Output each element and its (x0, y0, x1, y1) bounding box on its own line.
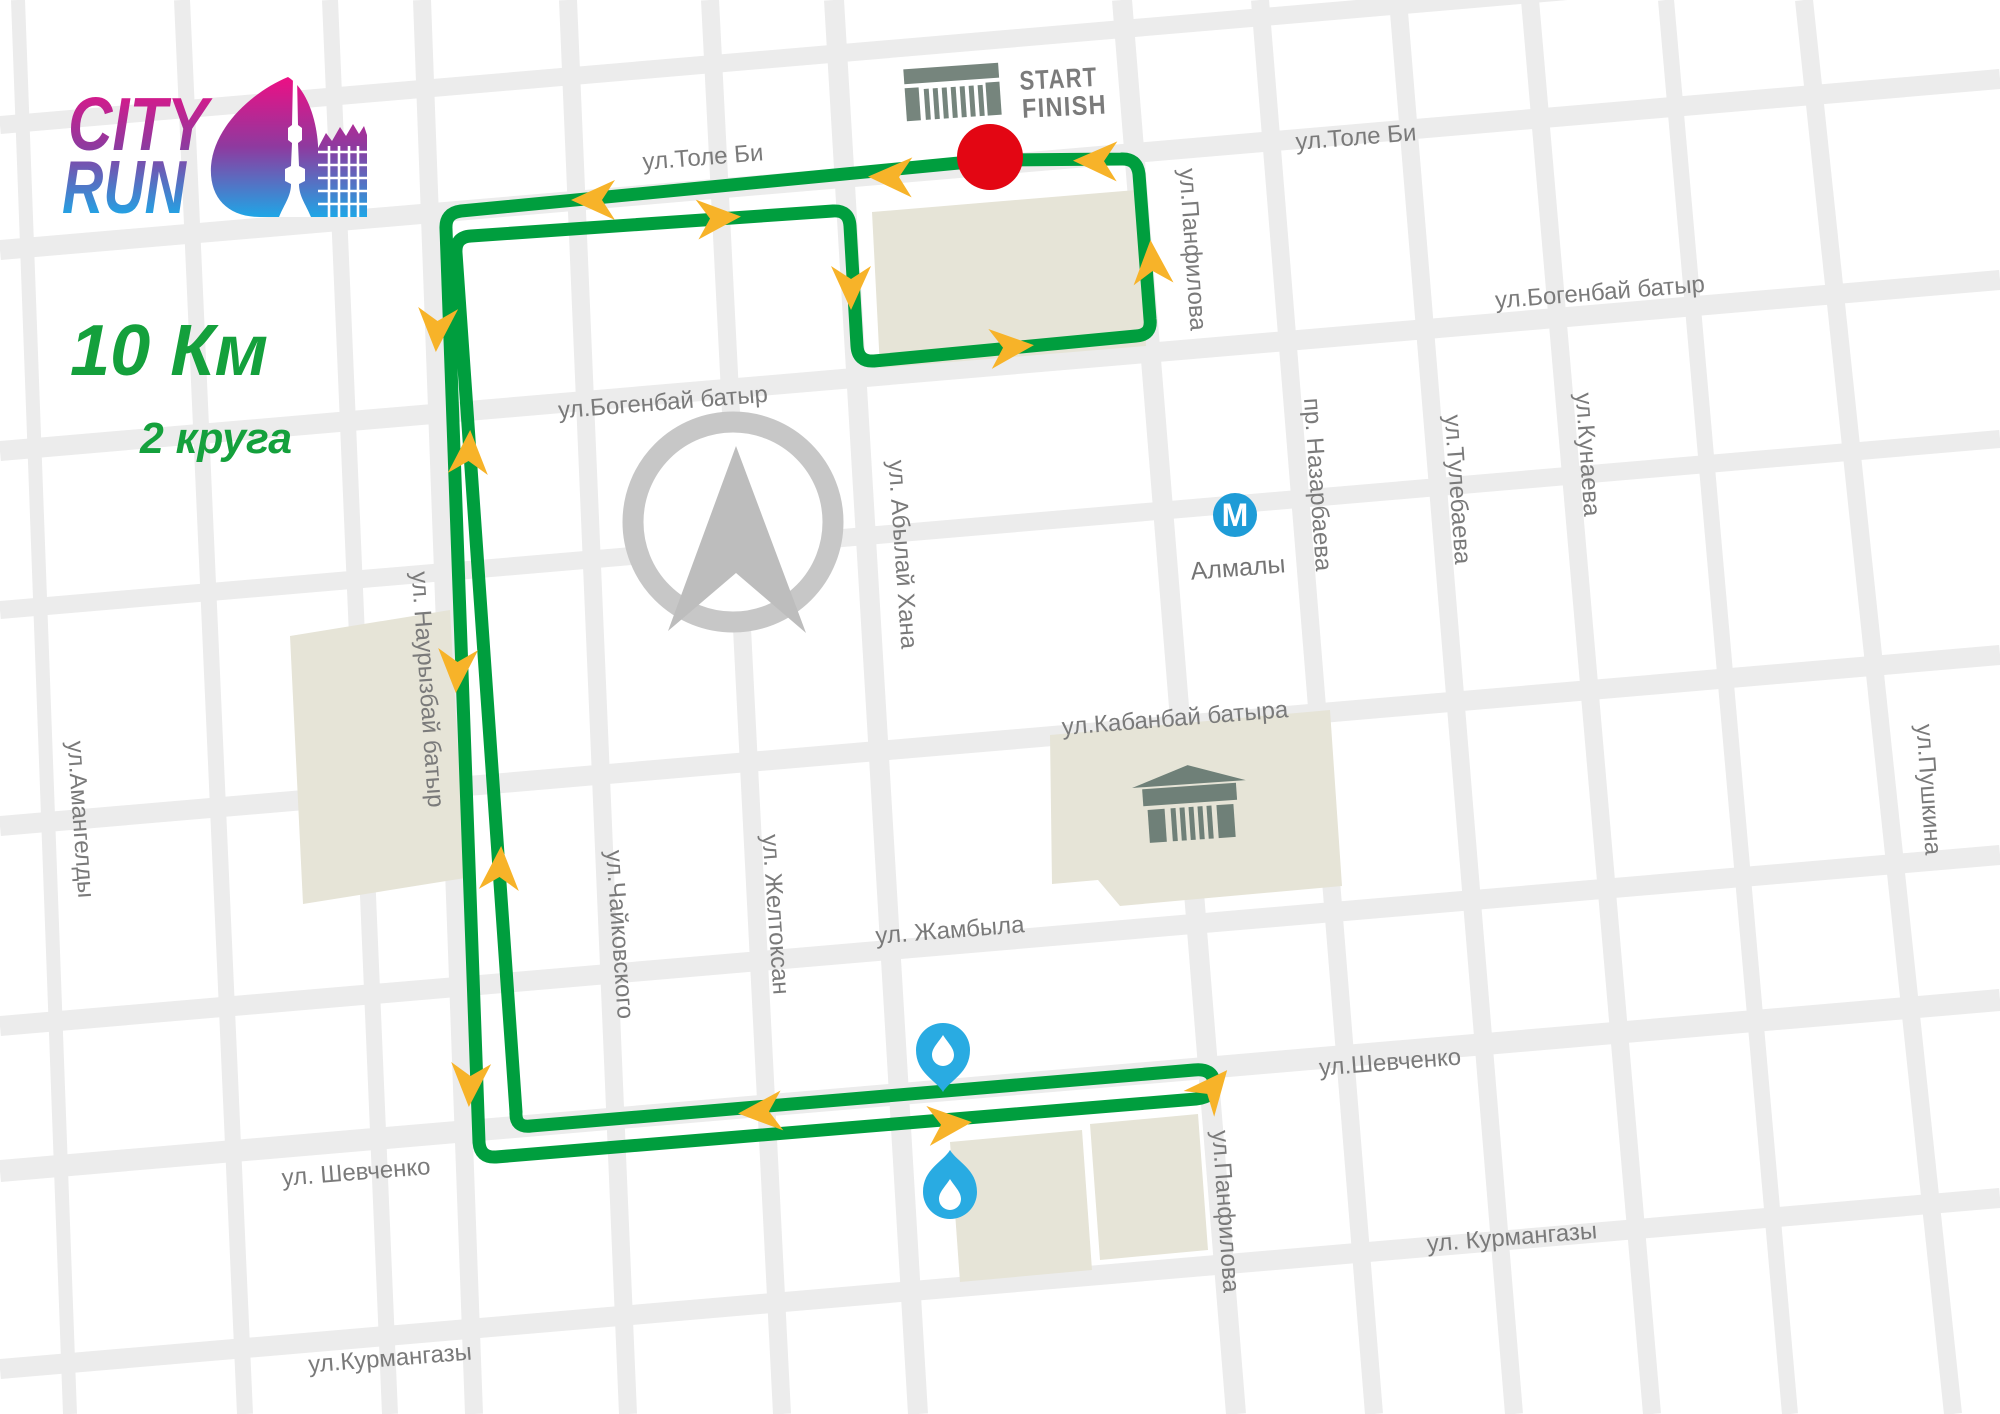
city-block-opera (1050, 710, 1342, 906)
distance-label: 10 Км (70, 311, 268, 391)
finish-label: FINISH (1021, 89, 1107, 123)
compass-icon (633, 422, 833, 633)
metro-symbol: М (1222, 497, 1249, 533)
logo-word-run: RUN (62, 145, 187, 229)
route-map-poster: START FINISH М Алмалы ул.Толе Би ул.Толе… (0, 0, 2000, 1414)
city-block (1090, 1114, 1208, 1260)
laps-label: 2 круга (139, 414, 292, 463)
start-finish-label: START FINISH (1019, 62, 1108, 124)
metro-icon: М (1213, 493, 1257, 537)
map-canvas: START FINISH М Алмалы ул.Толе Би ул.Толе… (0, 0, 2000, 1414)
start-finish-dot (957, 124, 1023, 190)
